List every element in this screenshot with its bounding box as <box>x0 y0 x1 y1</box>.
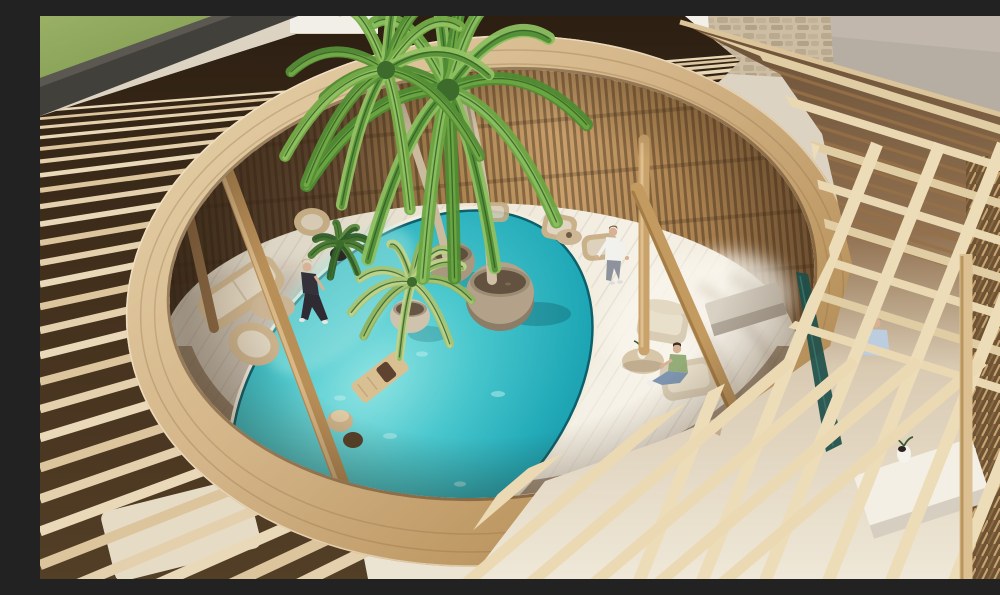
rendering: Bird's-eye rendering: a slatted timber p… <box>40 16 1000 579</box>
palm-crown-center <box>377 61 395 79</box>
courtyard-rendering <box>40 16 1000 579</box>
